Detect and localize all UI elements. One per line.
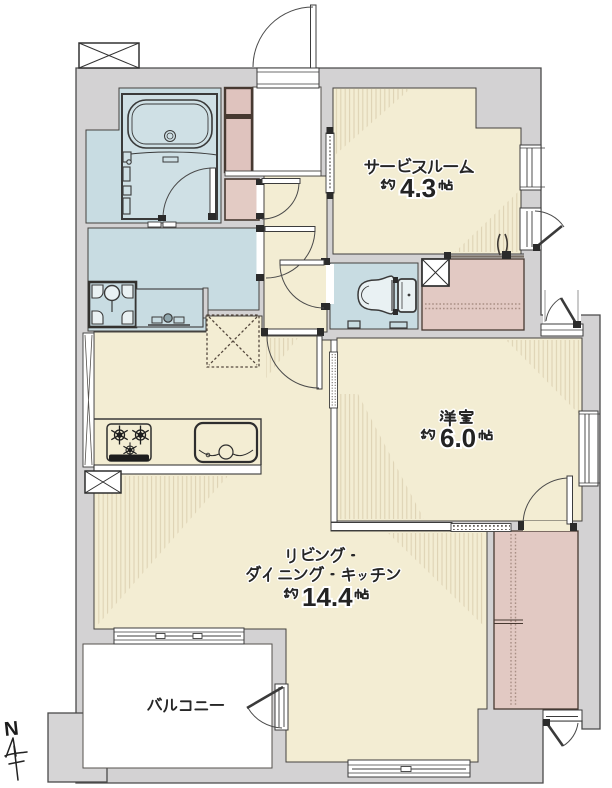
svg-text:4.3: 4.3 <box>400 173 436 203</box>
svg-text:6.0: 6.0 <box>440 423 476 453</box>
svg-text:14.4: 14.4 <box>302 582 353 612</box>
svg-text:N: N <box>3 718 20 741</box>
